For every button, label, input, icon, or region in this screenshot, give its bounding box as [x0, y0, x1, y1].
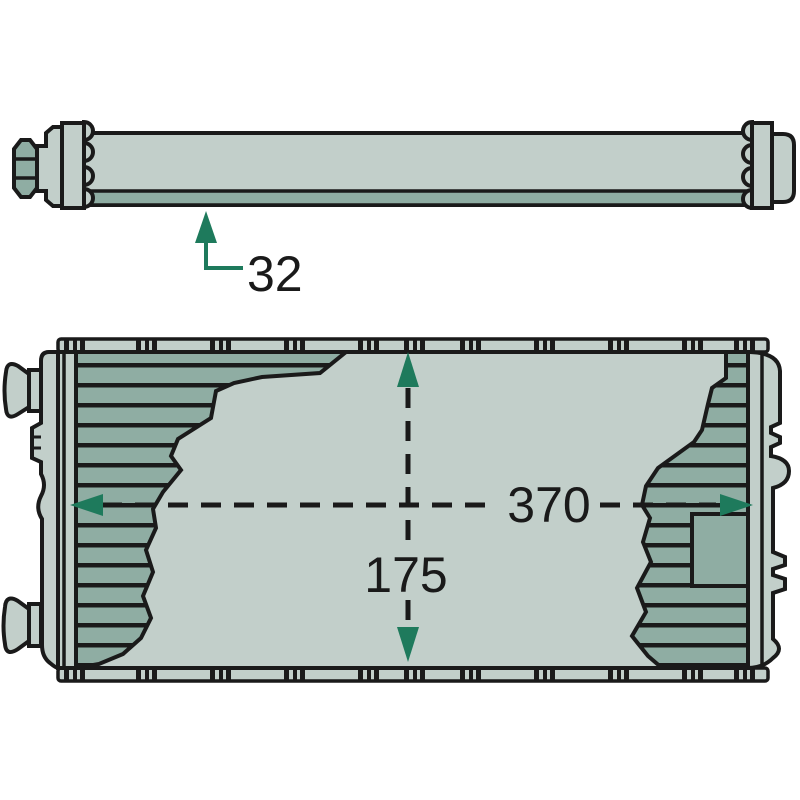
depth-leader-line: [206, 243, 243, 268]
front-view: 370 175: [4, 339, 790, 681]
technical-drawing: 32: [0, 0, 800, 800]
arrowhead-up-icon: [195, 211, 217, 243]
height-dimension-label: 175: [364, 547, 447, 603]
side-view-connector-collar: [37, 127, 62, 206]
side-view-bottom-strip: [84, 191, 752, 205]
side-view: [14, 122, 794, 208]
bracket-plate: [692, 514, 748, 586]
outlet-pipe-bottom: [4, 599, 42, 652]
side-view-connector-nut: [14, 140, 37, 197]
depth-dimension-label: 32: [247, 246, 303, 302]
width-dimension-label: 370: [507, 477, 590, 533]
depth-dimension: 32: [195, 211, 303, 302]
inlet-pipe-top: [5, 364, 42, 417]
side-view-right-end-cap: [772, 134, 794, 202]
